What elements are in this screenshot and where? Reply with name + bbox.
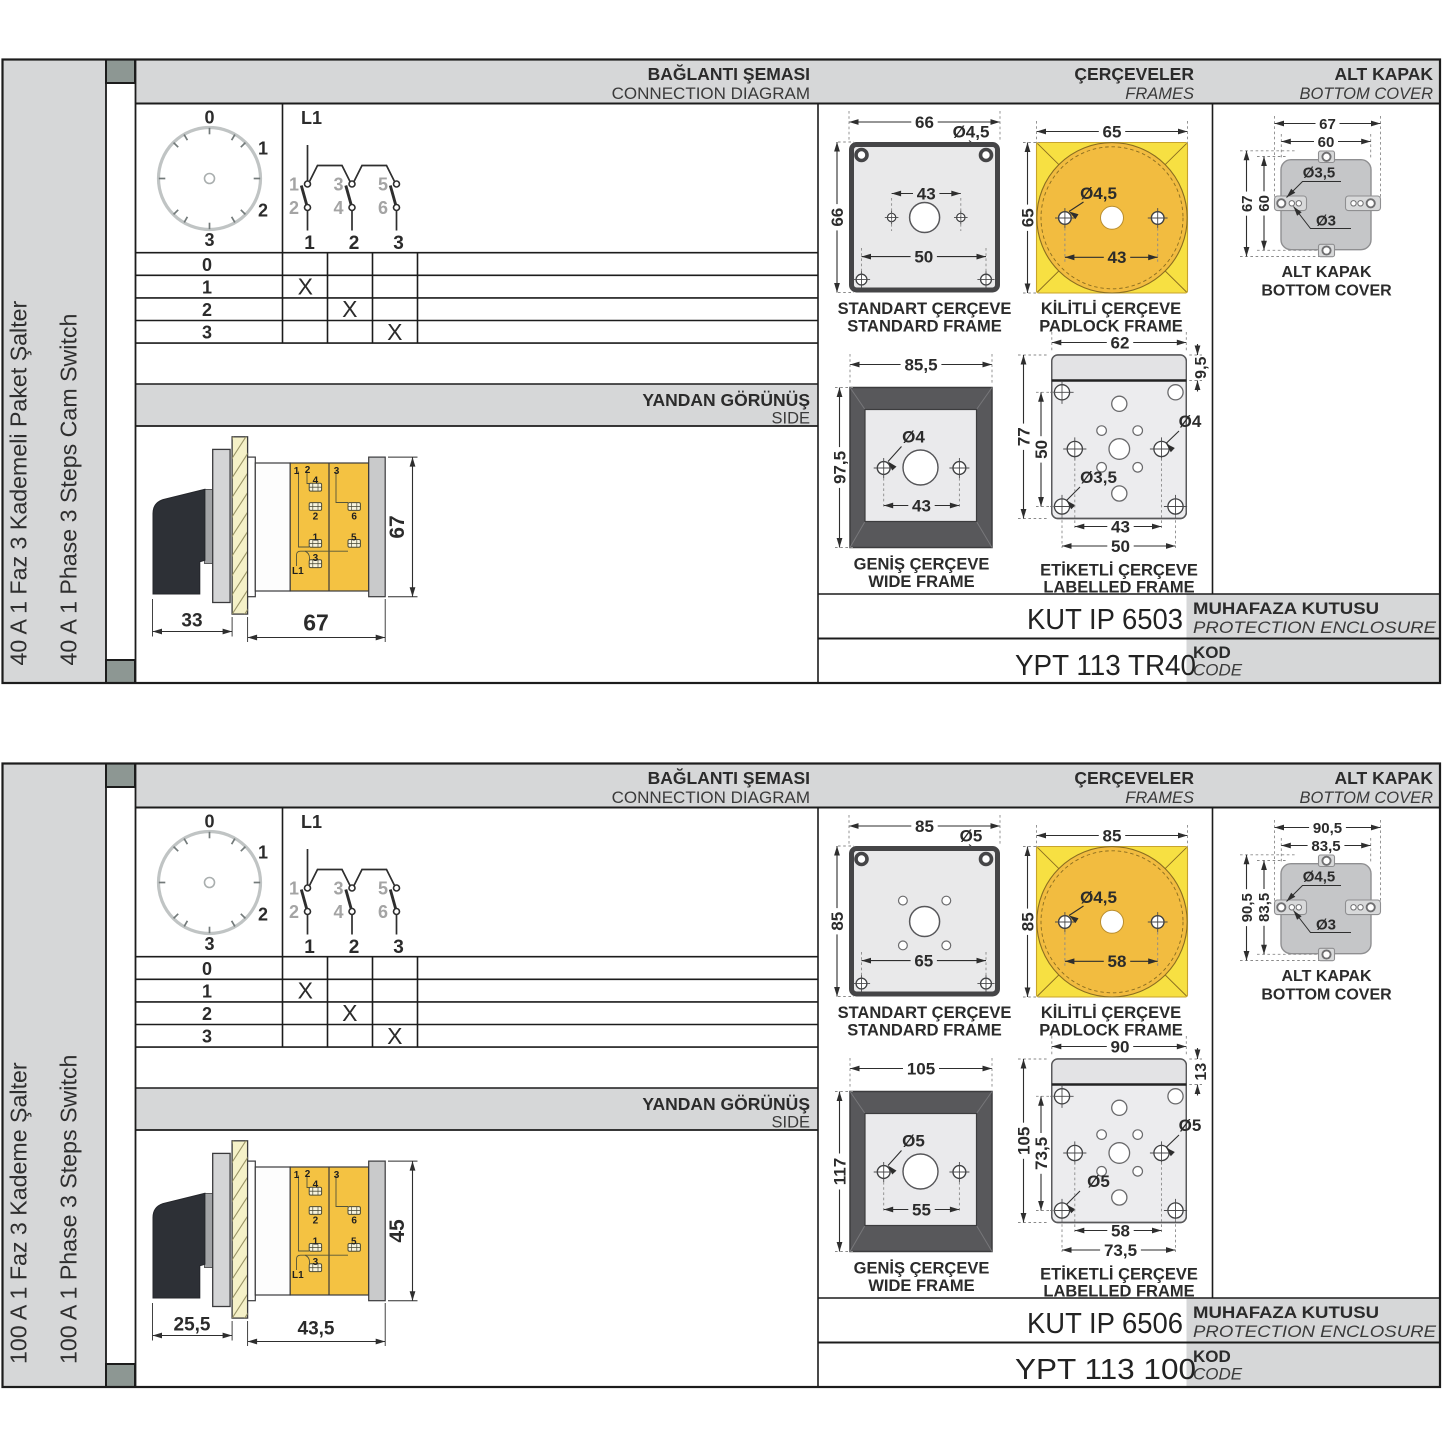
svg-text:GENİŞ ÇERÇEVE: GENİŞ ÇERÇEVE [854, 556, 990, 574]
svg-text:KUT IP 6503: KUT IP 6503 [1027, 604, 1183, 636]
svg-text:FRAMES: FRAMES [1125, 789, 1194, 807]
svg-text:KİLİTLİ ÇERÇEVE: KİLİTLİ ÇERÇEVE [1041, 300, 1181, 318]
svg-text:43: 43 [1111, 518, 1130, 537]
svg-text:CODE: CODE [1193, 1365, 1243, 1384]
svg-text:STANDARD FRAME: STANDARD FRAME [847, 1022, 1002, 1040]
svg-text:3: 3 [202, 1027, 212, 1047]
svg-text:Ø5: Ø5 [960, 827, 983, 846]
svg-text:43: 43 [912, 496, 931, 515]
svg-text:L1: L1 [292, 566, 304, 577]
svg-text:X: X [387, 1023, 402, 1049]
svg-text:1: 1 [289, 879, 299, 899]
svg-text:73,5: 73,5 [1104, 1241, 1137, 1260]
svg-text:KUT IP 6506: KUT IP 6506 [1027, 1308, 1183, 1340]
svg-text:2: 2 [289, 902, 299, 922]
svg-text:3: 3 [333, 879, 343, 899]
svg-text:Ø5: Ø5 [902, 1132, 925, 1151]
svg-text:Ø4: Ø4 [1179, 412, 1202, 431]
svg-text:0: 0 [204, 812, 214, 832]
svg-text:85,5: 85,5 [904, 355, 937, 374]
svg-text:PROTECTION ENCLOSURE: PROTECTION ENCLOSURE [1193, 618, 1437, 637]
svg-text:CONNECTION DIAGRAM: CONNECTION DIAGRAM [612, 84, 810, 103]
svg-text:3: 3 [313, 553, 319, 564]
svg-text:50: 50 [1111, 537, 1130, 556]
svg-text:MUHAFAZA KUTUSU: MUHAFAZA KUTUSU [1193, 1303, 1379, 1322]
svg-text:2: 2 [258, 201, 268, 221]
svg-text:STANDART ÇERÇEVE: STANDART ÇERÇEVE [838, 1004, 1012, 1022]
svg-text:LABELLED FRAME: LABELLED FRAME [1043, 1283, 1194, 1301]
svg-text:62: 62 [1111, 333, 1130, 352]
svg-text:43: 43 [917, 184, 936, 203]
svg-text:1: 1 [304, 937, 315, 958]
svg-text:2: 2 [313, 512, 319, 523]
svg-text:5: 5 [351, 1237, 357, 1248]
svg-text:ÇERÇEVELER: ÇERÇEVELER [1074, 64, 1194, 84]
svg-text:Ø3: Ø3 [1316, 917, 1336, 934]
svg-text:SIDE: SIDE [771, 1114, 810, 1132]
svg-text:FRAMES: FRAMES [1125, 85, 1194, 103]
svg-text:60: 60 [1318, 134, 1335, 151]
svg-text:1: 1 [258, 843, 268, 863]
svg-text:65: 65 [1103, 122, 1122, 141]
svg-text:3: 3 [202, 323, 212, 343]
svg-text:90: 90 [1111, 1037, 1130, 1056]
svg-text:3: 3 [333, 175, 343, 195]
svg-text:85: 85 [1019, 912, 1038, 931]
svg-text:3: 3 [313, 1257, 319, 1268]
svg-text:40 A 1 Faz 3 Kademeli Paket Şa: 40 A 1 Faz 3 Kademeli Paket Şalter [6, 300, 32, 665]
svg-text:BAĞLANTI ŞEMASI: BAĞLANTI ŞEMASI [648, 767, 810, 788]
svg-text:90,5: 90,5 [1313, 820, 1342, 837]
svg-text:58: 58 [1108, 952, 1127, 971]
svg-text:4: 4 [313, 1180, 319, 1191]
svg-text:4: 4 [333, 902, 343, 922]
svg-text:3: 3 [204, 934, 214, 954]
svg-text:40 A 1 Phase 3 Steps Cam Switc: 40 A 1 Phase 3 Steps Cam Switch [56, 314, 82, 666]
svg-text:Ø3: Ø3 [1316, 213, 1336, 230]
svg-text:Ø4,5: Ø4,5 [1303, 869, 1336, 886]
svg-text:Ø4,5: Ø4,5 [953, 123, 990, 142]
svg-text:58: 58 [1111, 1222, 1130, 1241]
svg-text:LABELLED FRAME: LABELLED FRAME [1043, 579, 1194, 597]
svg-text:ALT KAPAK: ALT KAPAK [1334, 768, 1433, 788]
svg-text:43: 43 [1108, 248, 1127, 267]
svg-text:60: 60 [1256, 195, 1273, 212]
svg-text:Ø3,5: Ø3,5 [1303, 165, 1336, 182]
svg-text:1: 1 [258, 139, 268, 159]
svg-text:YANDAN GÖRÜNÜŞ: YANDAN GÖRÜNÜŞ [642, 390, 810, 410]
svg-text:1: 1 [202, 981, 212, 1001]
svg-text:Ø4: Ø4 [902, 428, 925, 447]
svg-text:77: 77 [1015, 427, 1034, 446]
svg-text:65: 65 [914, 952, 933, 971]
svg-text:GENİŞ ÇERÇEVE: GENİŞ ÇERÇEVE [854, 1260, 990, 1278]
svg-text:67: 67 [1319, 116, 1336, 133]
svg-text:3: 3 [334, 1170, 340, 1181]
svg-text:Ø3,5: Ø3,5 [1080, 468, 1117, 487]
svg-text:73,5: 73,5 [1032, 1137, 1051, 1170]
svg-text:100 A 1 Faz 3 Kademe Şalter: 100 A 1 Faz 3 Kademe Şalter [6, 1062, 32, 1364]
svg-text:2: 2 [349, 937, 360, 958]
svg-text:YPT 113 100: YPT 113 100 [1015, 1354, 1196, 1386]
svg-text:3: 3 [393, 937, 404, 958]
svg-text:X: X [298, 274, 313, 300]
svg-text:90,5: 90,5 [1239, 893, 1256, 922]
svg-text:ALT KAPAK: ALT KAPAK [1334, 64, 1433, 84]
svg-text:66: 66 [828, 208, 847, 227]
svg-text:1: 1 [294, 466, 300, 477]
svg-text:83,5: 83,5 [1256, 893, 1273, 922]
svg-text:1: 1 [294, 1170, 300, 1181]
svg-text:2: 2 [313, 1216, 319, 1227]
svg-text:97,5: 97,5 [831, 451, 850, 484]
svg-text:9,5: 9,5 [1193, 356, 1210, 378]
svg-text:85: 85 [915, 817, 934, 836]
svg-text:3: 3 [204, 230, 214, 250]
svg-text:25,5: 25,5 [174, 1315, 211, 1336]
svg-text:65: 65 [1019, 208, 1038, 227]
svg-text:YPT 113 TR40: YPT 113 TR40 [1015, 650, 1196, 682]
svg-text:0: 0 [202, 255, 212, 275]
svg-text:L1: L1 [301, 108, 322, 128]
svg-text:1: 1 [202, 277, 212, 297]
svg-text:43,5: 43,5 [298, 1319, 335, 1340]
svg-text:KOD: KOD [1193, 1347, 1231, 1366]
svg-text:PROTECTION ENCLOSURE: PROTECTION ENCLOSURE [1193, 1322, 1437, 1341]
svg-text:67: 67 [386, 515, 409, 538]
svg-text:0: 0 [204, 108, 214, 128]
svg-text:KOD: KOD [1193, 643, 1231, 662]
svg-text:X: X [298, 978, 313, 1004]
svg-text:L1: L1 [301, 812, 322, 832]
svg-text:67: 67 [303, 610, 329, 636]
svg-text:YANDAN GÖRÜNÜŞ: YANDAN GÖRÜNÜŞ [642, 1094, 810, 1114]
svg-text:1: 1 [313, 533, 319, 544]
svg-text:1: 1 [304, 233, 315, 254]
svg-text:X: X [387, 319, 402, 345]
svg-text:WIDE FRAME: WIDE FRAME [868, 573, 974, 591]
svg-text:2: 2 [289, 198, 299, 218]
svg-text:100 A 1 Phase 3 Steps Switch: 100 A 1 Phase 3 Steps Switch [56, 1055, 82, 1364]
svg-text:3: 3 [334, 466, 340, 477]
svg-text:CODE: CODE [1193, 661, 1243, 680]
svg-text:Ø4,5: Ø4,5 [1080, 184, 1117, 203]
svg-text:ALT KAPAK: ALT KAPAK [1281, 264, 1372, 281]
svg-text:STANDARD FRAME: STANDARD FRAME [847, 318, 1002, 336]
svg-text:MUHAFAZA KUTUSU: MUHAFAZA KUTUSU [1193, 599, 1379, 618]
svg-text:X: X [342, 1000, 357, 1026]
svg-text:5: 5 [378, 879, 388, 899]
svg-text:BOTTOM COVER: BOTTOM COVER [1299, 789, 1433, 807]
svg-text:4: 4 [313, 476, 319, 487]
svg-text:BOTTOM COVER: BOTTOM COVER [1261, 987, 1392, 1004]
svg-text:5: 5 [351, 533, 357, 544]
svg-text:66: 66 [915, 113, 934, 132]
svg-text:6: 6 [378, 902, 388, 922]
svg-text:85: 85 [828, 912, 847, 931]
svg-text:0: 0 [202, 959, 212, 979]
svg-text:2: 2 [202, 1004, 212, 1024]
svg-text:SIDE: SIDE [771, 410, 810, 428]
svg-text:83,5: 83,5 [1311, 838, 1340, 855]
svg-text:1: 1 [289, 175, 299, 195]
svg-text:2: 2 [305, 465, 311, 476]
svg-text:33: 33 [181, 611, 202, 632]
svg-text:50: 50 [1032, 440, 1051, 459]
svg-text:117: 117 [831, 1158, 850, 1185]
svg-text:67: 67 [1239, 195, 1256, 212]
svg-text:50: 50 [914, 248, 933, 267]
svg-text:BOTTOM COVER: BOTTOM COVER [1261, 283, 1392, 300]
svg-text:6: 6 [378, 198, 388, 218]
svg-text:5: 5 [378, 175, 388, 195]
svg-text:2: 2 [349, 233, 360, 254]
svg-text:ÇERÇEVELER: ÇERÇEVELER [1074, 768, 1194, 788]
svg-text:STANDART ÇERÇEVE: STANDART ÇERÇEVE [838, 300, 1012, 318]
svg-text:ETİKETLİ ÇERÇEVE: ETİKETLİ ÇERÇEVE [1040, 562, 1198, 580]
svg-text:Ø5: Ø5 [1087, 1172, 1110, 1191]
svg-text:6: 6 [351, 512, 357, 523]
svg-text:4: 4 [333, 198, 343, 218]
svg-text:Ø5: Ø5 [1179, 1116, 1202, 1135]
svg-text:13: 13 [1193, 1063, 1210, 1081]
svg-text:1: 1 [313, 1237, 319, 1248]
svg-text:45: 45 [386, 1219, 409, 1243]
svg-text:ETİKETLİ ÇERÇEVE: ETİKETLİ ÇERÇEVE [1040, 1266, 1198, 1284]
svg-text:2: 2 [258, 905, 268, 925]
svg-text:6: 6 [351, 1216, 357, 1227]
svg-text:X: X [342, 296, 357, 322]
svg-text:ALT KAPAK: ALT KAPAK [1281, 968, 1372, 985]
svg-text:105: 105 [907, 1059, 935, 1078]
svg-text:55: 55 [912, 1200, 931, 1219]
svg-text:85: 85 [1103, 826, 1122, 845]
svg-text:KİLİTLİ ÇERÇEVE: KİLİTLİ ÇERÇEVE [1041, 1004, 1181, 1022]
svg-text:2: 2 [202, 300, 212, 320]
svg-text:105: 105 [1015, 1127, 1034, 1155]
svg-text:L1: L1 [292, 1270, 304, 1281]
svg-text:3: 3 [393, 233, 404, 254]
svg-text:CONNECTION DIAGRAM: CONNECTION DIAGRAM [612, 788, 810, 807]
svg-text:BOTTOM COVER: BOTTOM COVER [1299, 85, 1433, 103]
svg-text:WIDE FRAME: WIDE FRAME [868, 1277, 974, 1295]
svg-text:Ø4,5: Ø4,5 [1080, 888, 1117, 907]
svg-text:2: 2 [305, 1169, 311, 1180]
svg-text:BAĞLANTI ŞEMASI: BAĞLANTI ŞEMASI [648, 63, 810, 84]
